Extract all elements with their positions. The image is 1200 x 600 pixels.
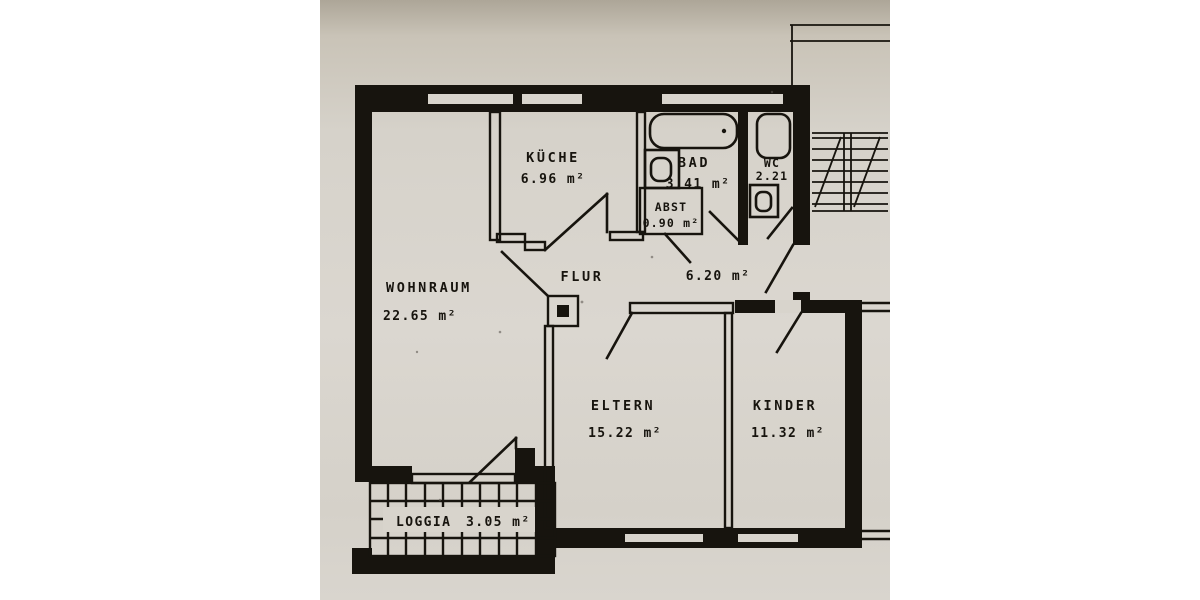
staircase (812, 133, 888, 211)
door-eltern (607, 313, 632, 358)
shaft-box (548, 296, 578, 326)
label-eltern: ELTERN (591, 398, 655, 414)
wall-continuations (862, 303, 890, 539)
label-abst: ABST (655, 200, 688, 214)
toilet-icon (757, 114, 790, 158)
label-wc: WC (764, 156, 780, 170)
label-loggia: LOGGIA (396, 515, 451, 530)
door-vestibule (768, 208, 792, 238)
area-loggia: 3.05 m² (466, 515, 531, 530)
floorplan-photo: WOHNRAUM 22.65 m² KÜCHE 6.96 m² BAD 3.41… (320, 0, 890, 600)
window-eltern (625, 534, 703, 542)
door-loggia (470, 438, 516, 482)
window-wohnraum (428, 94, 513, 104)
door-wohnraum (502, 252, 548, 296)
building-outline-top-right (790, 25, 890, 86)
window-bad-wc (662, 94, 783, 104)
door-abst (665, 234, 690, 262)
door-entrance (766, 245, 793, 292)
kinder-door-opening (775, 300, 801, 313)
window-kinder (738, 534, 798, 542)
wc-sink-icon (750, 185, 778, 217)
label-wohnraum: WOHNRAUM (386, 280, 472, 296)
label-bad: BAD (678, 155, 710, 171)
label-kueche: KÜCHE (526, 148, 580, 166)
door-wc (710, 212, 738, 240)
door-kueche (545, 194, 607, 250)
area-flur: 6.20 m² (686, 269, 751, 284)
area-bad: 3.41 m² (666, 177, 731, 192)
label-kinder: KINDER (753, 398, 817, 414)
window-kueche (522, 94, 582, 104)
screenshot-canvas: WOHNRAUM 22.65 m² KÜCHE 6.96 m² BAD 3.41… (0, 0, 1200, 600)
floor-plan-drawing: WOHNRAUM 22.65 m² KÜCHE 6.96 m² BAD 3.41… (320, 0, 890, 600)
area-eltern: 15.22 m² (588, 426, 662, 441)
area-wc: 2.21 (756, 169, 789, 183)
area-kinder: 11.32 m² (751, 426, 825, 441)
area-wohnraum: 22.65 m² (383, 309, 457, 324)
door-kinder (777, 313, 801, 352)
room-labels: WOHNRAUM 22.65 m² KÜCHE 6.96 m² BAD 3.41… (383, 148, 825, 530)
label-flur: FLUR (561, 269, 604, 285)
area-abst: 0.90 m² (643, 216, 700, 230)
area-kueche: 6.96 m² (521, 172, 586, 187)
bathtub (650, 114, 737, 148)
